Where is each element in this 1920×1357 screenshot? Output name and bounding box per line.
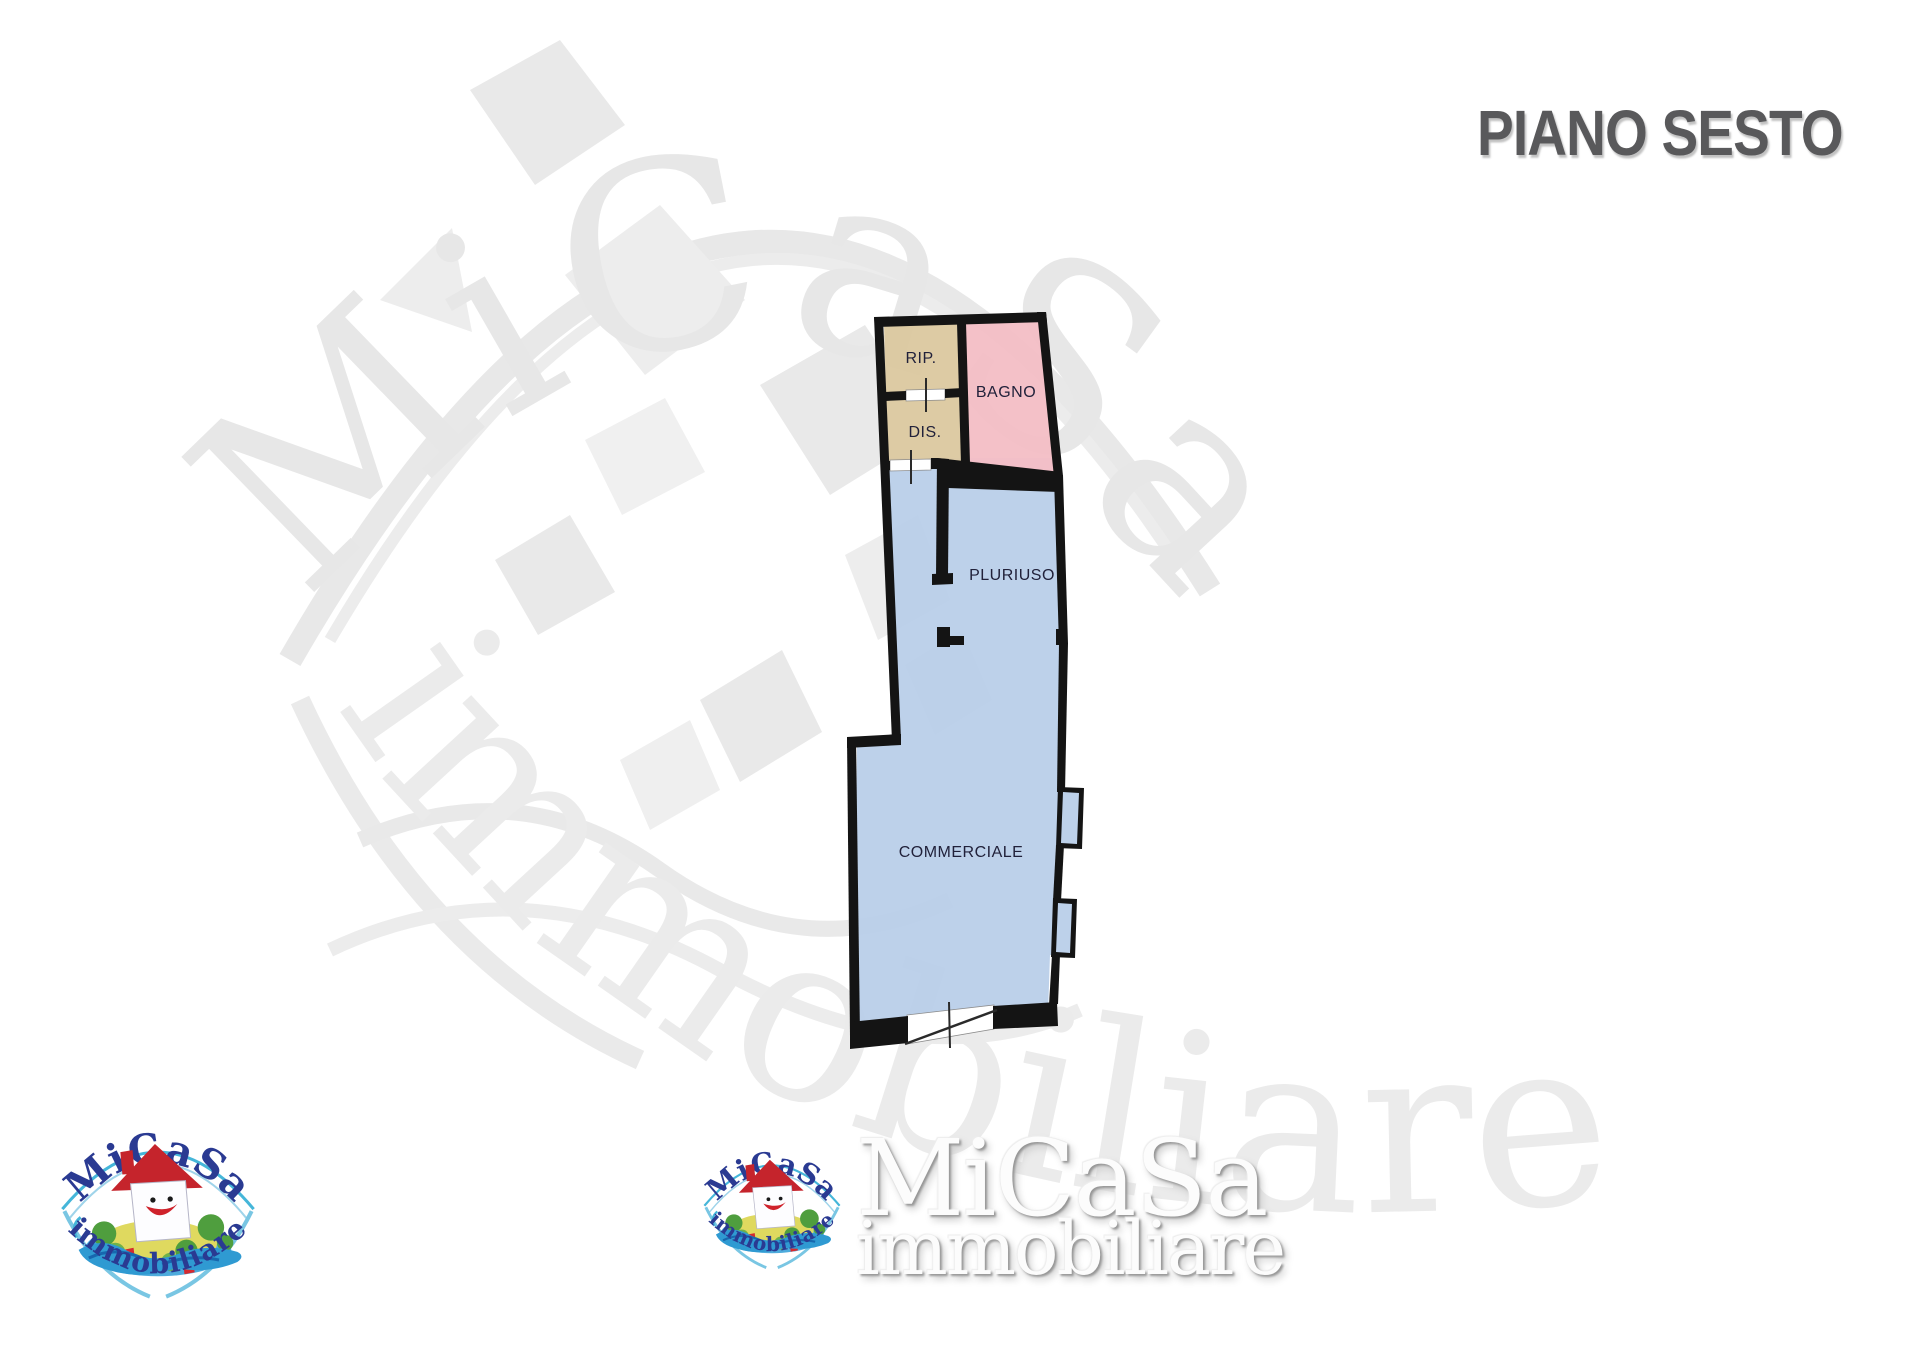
footer-wordmark-subtitle: immobiliare [856,1212,1284,1286]
background-watermark: MiCaSa immobiliare [137,40,1621,1269]
wall-dis-main-left [887,461,890,470]
wall-mid-stub-right [1056,629,1065,645]
wall-mid-stub-left-h [950,636,964,645]
watermark-brand-text: MiCaSa [137,92,1363,648]
wall-corridor-stub-foot [932,573,953,585]
wall-corridor-stub [936,458,949,577]
floor-plan: RIP. DIS. BAGNO PLURIUSO COMMERCIALE [847,312,1084,1049]
room-label-commerciale: COMMERCIALE [899,844,1024,861]
wall-rip-dis-left [885,391,906,401]
page-root: MiCaSa [0,0,1920,1357]
room-label-pluriuso: PLURIUSO [969,567,1055,584]
wall-bottom-right [993,1002,1058,1029]
room-label-rip: RIP. [905,350,936,367]
wall-rip-dis-right [945,388,963,398]
agency-logo [52,1085,264,1317]
room-label-dis: DIS. [908,424,941,441]
page-title: PIANO SESTO [1477,96,1843,170]
footer-logo [696,1118,848,1282]
door-tick-entrance [949,1002,950,1048]
room-label-bagno: BAGNO [976,384,1036,401]
wall-mid-stub-left-v [937,627,950,647]
